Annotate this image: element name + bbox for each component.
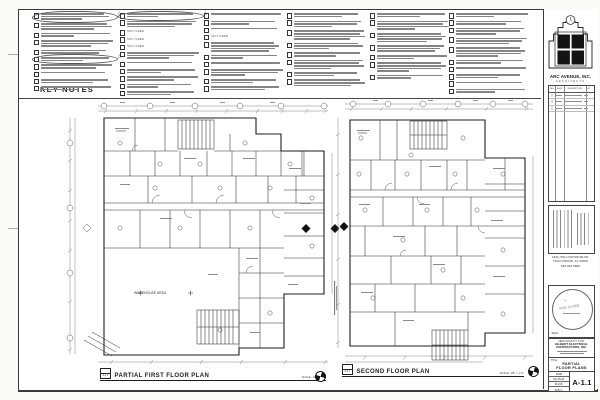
note-text-line bbox=[377, 65, 445, 67]
note-text-line bbox=[294, 26, 332, 28]
note-text-line bbox=[456, 47, 520, 49]
key-note-text bbox=[294, 42, 367, 50]
key-note-item bbox=[34, 50, 114, 56]
rotated-text-block bbox=[577, 213, 590, 245]
note-text-line bbox=[377, 48, 440, 50]
note-text-line bbox=[127, 62, 192, 64]
project-name: CONTRACTORS, INC. bbox=[549, 346, 594, 350]
key-note-text bbox=[41, 40, 114, 48]
note-text-line bbox=[127, 21, 196, 23]
note-text-line bbox=[456, 91, 495, 93]
note-text-line bbox=[456, 16, 494, 18]
key-note-item bbox=[204, 79, 284, 85]
note-text-line bbox=[377, 21, 448, 23]
note-text-line bbox=[127, 86, 158, 88]
key-note-number-box bbox=[204, 13, 209, 18]
key-note-text bbox=[377, 55, 450, 60]
key-note-number-box bbox=[449, 81, 454, 86]
note-text-line bbox=[41, 43, 108, 45]
note-text-line bbox=[211, 13, 281, 15]
key-note-item bbox=[120, 52, 200, 60]
note-text-line bbox=[294, 68, 331, 70]
note-text-line bbox=[377, 33, 441, 35]
interior-walls bbox=[350, 120, 525, 360]
key-note-number-box bbox=[370, 20, 375, 25]
key-note-text bbox=[127, 20, 200, 28]
note-text-line bbox=[294, 48, 329, 50]
refbox-sheet: A-1.1 bbox=[101, 374, 110, 378]
note-text-line bbox=[41, 40, 112, 42]
key-notes-column bbox=[370, 13, 450, 82]
note-text-line bbox=[377, 70, 409, 72]
key-note-text bbox=[456, 88, 529, 93]
note-text-line bbox=[41, 52, 99, 54]
key-note-number-box bbox=[449, 37, 454, 42]
key-note-number-box bbox=[204, 55, 209, 60]
key-note-item bbox=[120, 62, 200, 68]
note-text-line bbox=[294, 55, 336, 57]
key-note-item: NOT USED bbox=[204, 35, 284, 41]
key-note-item bbox=[287, 20, 367, 28]
note-text-line bbox=[41, 89, 77, 91]
key-note-item bbox=[287, 52, 367, 58]
note-text-line bbox=[41, 13, 104, 15]
note-text-line bbox=[377, 77, 411, 79]
key-note-item bbox=[370, 20, 450, 31]
note-text-line bbox=[294, 62, 359, 64]
note-text-line bbox=[377, 62, 440, 64]
key-note-number-box bbox=[204, 42, 209, 47]
key-notes-column: △△ bbox=[34, 13, 114, 93]
key-note-text bbox=[377, 20, 450, 31]
key-note-text bbox=[377, 13, 450, 18]
key-note-number-box bbox=[120, 20, 125, 25]
key-note-number-box bbox=[449, 74, 454, 79]
note-text-line bbox=[127, 16, 158, 18]
key-note-number-box bbox=[120, 45, 125, 50]
note-text-line bbox=[377, 16, 420, 18]
key-notes-column: △NOT USEDNOT USEDNOT USED bbox=[120, 13, 200, 98]
first-floor-plan-drawing: WAREHOUSE AREA bbox=[60, 98, 340, 370]
note-text-line bbox=[41, 86, 111, 88]
key-note-text bbox=[456, 37, 529, 45]
note-text-line bbox=[127, 79, 174, 81]
second-floor-plan-caption: A-1.1 SECOND FLOOR PLAN SCALE: 1/8" = 1'… bbox=[342, 364, 524, 377]
key-note-text bbox=[456, 13, 529, 18]
seal-box: AUG 13 2002 + SEAL bbox=[548, 285, 595, 339]
note-text-line bbox=[377, 41, 427, 43]
key-note-text bbox=[127, 52, 200, 60]
note-text-line bbox=[41, 18, 82, 20]
key-note-number-box bbox=[120, 52, 125, 57]
key-note-text bbox=[41, 33, 114, 38]
note-text-line bbox=[294, 65, 364, 67]
note-text-line bbox=[456, 30, 519, 32]
key-note-number-box bbox=[449, 13, 454, 18]
key-note-text bbox=[456, 81, 529, 84]
key-note-item: △ bbox=[120, 13, 200, 19]
key-note-text bbox=[211, 62, 284, 65]
key-note-item: NOT USED bbox=[120, 30, 200, 36]
note-text-line bbox=[294, 85, 351, 87]
key-note-text bbox=[41, 13, 114, 21]
key-note-number-box bbox=[34, 33, 39, 38]
note-text-line bbox=[456, 62, 500, 64]
note-text-line bbox=[127, 76, 198, 78]
fold-mark bbox=[8, 228, 18, 229]
note-text-line bbox=[377, 55, 447, 57]
dimension-lines bbox=[336, 104, 533, 362]
key-note-number-box bbox=[370, 45, 375, 50]
note-text-line bbox=[294, 38, 349, 40]
key-note-text bbox=[41, 50, 114, 55]
key-note-text bbox=[41, 23, 114, 31]
key-note-text bbox=[127, 83, 200, 88]
key-note-item bbox=[449, 28, 529, 36]
second-floor-plan-scale: SCALE: 1/8" = 1'-0" bbox=[500, 371, 524, 376]
note-text-line bbox=[456, 53, 521, 55]
note-text-line bbox=[294, 21, 361, 23]
key-note-item bbox=[287, 59, 367, 70]
refbox-sheet: A-1.1 bbox=[343, 370, 352, 374]
key-note-number-box bbox=[287, 13, 292, 18]
note-text-line bbox=[41, 26, 112, 28]
stamp-line bbox=[563, 313, 580, 314]
note-text-line bbox=[294, 13, 358, 15]
key-note-number-box bbox=[449, 28, 454, 33]
note-text-line bbox=[294, 45, 362, 47]
note-text-line bbox=[127, 57, 169, 59]
note-text-line bbox=[294, 30, 364, 32]
key-note-text bbox=[127, 62, 200, 65]
key-note-text: NOT USED bbox=[127, 37, 200, 40]
key-note-number-box bbox=[34, 23, 39, 28]
key-note-number-box bbox=[204, 86, 209, 91]
key-note-text bbox=[41, 64, 114, 69]
section-markers bbox=[340, 222, 349, 231]
key-note-item: △ bbox=[34, 13, 114, 21]
sheet-info-grid: 1500 06-15-01 R.D.B. D.B.C. A-1.1 bbox=[548, 371, 595, 392]
revision-entry-placeholder bbox=[584, 95, 588, 96]
key-note-text bbox=[211, 20, 284, 25]
note-text-line bbox=[456, 43, 508, 45]
phone-number: 954.923.5800 bbox=[545, 264, 596, 268]
second-floor-plan-drawing bbox=[333, 96, 553, 372]
note-text-line bbox=[211, 21, 274, 23]
key-note-text bbox=[41, 57, 114, 62]
key-note-item bbox=[204, 69, 284, 77]
key-note-text bbox=[41, 71, 114, 74]
key-note-number-box bbox=[370, 33, 375, 38]
note-text-line bbox=[456, 33, 496, 35]
key-note-number-box bbox=[120, 91, 125, 96]
key-note-item bbox=[34, 33, 114, 39]
key-note-number-box bbox=[120, 30, 125, 35]
firm-address: 2341 HOLLYWOOD BLVD. HOLLYWOOD, FL 33020… bbox=[545, 255, 596, 268]
second-floor-plan-title: SECOND FLOOR PLAN bbox=[357, 369, 430, 375]
note-text-line bbox=[377, 23, 443, 25]
note-text-line bbox=[211, 57, 243, 59]
grid-bubbles bbox=[67, 103, 327, 341]
key-note-text: NOT USED bbox=[127, 45, 200, 48]
by-col: BY bbox=[586, 88, 593, 90]
note-text-line bbox=[41, 79, 108, 81]
key-note-number-box bbox=[34, 79, 39, 84]
note-text-line bbox=[41, 60, 83, 62]
key-note-text bbox=[127, 76, 200, 81]
note-text-line bbox=[41, 28, 94, 30]
key-note-item bbox=[34, 86, 114, 92]
note-text-line bbox=[127, 69, 195, 71]
key-note-item bbox=[204, 42, 284, 53]
key-note-text bbox=[211, 54, 284, 59]
key-note-item bbox=[287, 30, 367, 41]
drawing-sheet-page: KEY NOTES △△△NOT USEDNOT USEDNOT USEDNOT… bbox=[0, 0, 600, 400]
key-note-text bbox=[211, 79, 284, 84]
key-note-number-box bbox=[370, 55, 375, 60]
key-note-item bbox=[120, 76, 200, 82]
note-text-line bbox=[294, 60, 363, 62]
note-text-line bbox=[456, 23, 506, 25]
key-note-text bbox=[377, 45, 450, 53]
checked-by: D.B.C. bbox=[549, 387, 569, 392]
key-note-item bbox=[449, 47, 529, 58]
note-text-line bbox=[377, 38, 442, 40]
description-col: DESCRIPTION bbox=[564, 88, 586, 90]
note-text-line bbox=[456, 28, 524, 30]
project-address-placeholder bbox=[560, 353, 584, 354]
note-text-line bbox=[127, 72, 161, 74]
key-note-text bbox=[211, 42, 284, 53]
key-note-number-box bbox=[287, 43, 292, 48]
key-note-number-box bbox=[204, 28, 209, 33]
note-text-line bbox=[294, 72, 357, 74]
revision-entry-placeholder bbox=[584, 108, 588, 109]
note-text-line bbox=[456, 21, 521, 23]
note-text-line bbox=[456, 55, 498, 57]
key-note-number-box bbox=[449, 60, 454, 65]
door-swings bbox=[385, 183, 485, 256]
note-text-line bbox=[456, 60, 523, 62]
key-note-number-box bbox=[204, 62, 209, 67]
warehouse-room-label: WAREHOUSE AREA bbox=[134, 291, 167, 295]
key-note-number-box bbox=[120, 84, 125, 89]
note-text-line bbox=[211, 50, 269, 52]
detail-reference-box: A-1.1 bbox=[342, 364, 353, 375]
firm-name: ARC AVENUE, INC. bbox=[548, 74, 593, 79]
detail-reference-box: A-1.1 bbox=[100, 368, 111, 379]
note-text-line bbox=[41, 57, 109, 59]
key-note-text bbox=[294, 52, 367, 57]
note-text-line bbox=[456, 77, 498, 79]
key-note-item bbox=[370, 74, 450, 80]
note-text-line bbox=[377, 13, 445, 15]
note-text-line bbox=[211, 79, 276, 81]
note-text-line bbox=[41, 23, 107, 25]
not-used-note: NOT USED bbox=[127, 38, 200, 41]
key-note-item bbox=[287, 42, 367, 50]
note-text-line bbox=[127, 13, 193, 15]
revision-entry-placeholder bbox=[564, 101, 582, 102]
building-outline bbox=[104, 118, 324, 355]
note-text-line bbox=[127, 55, 194, 57]
note-text-line bbox=[41, 50, 106, 52]
key-note-number-box bbox=[34, 72, 39, 77]
key-note-item: NOT USED bbox=[120, 45, 200, 51]
note-text-line bbox=[377, 26, 448, 28]
key-note-text: NOT USED bbox=[127, 30, 200, 33]
key-notes-column bbox=[449, 13, 529, 96]
note-text-line bbox=[294, 33, 360, 35]
key-note-item: NOT USED bbox=[120, 37, 200, 43]
keynote-tags bbox=[83, 141, 314, 332]
key-note-text bbox=[456, 28, 529, 36]
key-note-number-box bbox=[449, 89, 454, 94]
note-text-line bbox=[41, 67, 96, 69]
key-note-text bbox=[41, 79, 114, 84]
key-note-number-box bbox=[120, 69, 125, 74]
key-note-item bbox=[370, 33, 450, 44]
key-note-item bbox=[449, 37, 529, 45]
key-note-number-box bbox=[287, 60, 292, 65]
approval-stamp bbox=[552, 289, 593, 330]
key-note-item bbox=[449, 74, 529, 80]
note-text-line bbox=[377, 50, 435, 52]
key-note-number-box bbox=[370, 13, 375, 18]
title-label: TITLE: bbox=[551, 359, 558, 362]
note-text-line bbox=[456, 38, 527, 40]
note-text-line bbox=[127, 52, 198, 54]
note-text-line bbox=[294, 43, 357, 45]
note-text-line bbox=[127, 23, 192, 25]
seal-label: SEAL bbox=[552, 331, 559, 335]
note-text-line bbox=[456, 89, 525, 91]
key-note-text bbox=[294, 79, 367, 87]
room-label-placeholders bbox=[334, 100, 513, 321]
info-cells: 1500 06-15-01 R.D.B. D.B.C. bbox=[549, 372, 570, 392]
key-note-text bbox=[456, 20, 529, 25]
key-note-text bbox=[456, 47, 529, 58]
key-note-number-box bbox=[120, 13, 125, 18]
sheet-number: A-1.1 bbox=[570, 372, 594, 392]
note-text-line bbox=[294, 75, 333, 77]
not-used-note: NOT USED bbox=[127, 30, 200, 33]
key-note-text bbox=[294, 13, 367, 18]
note-text-line bbox=[211, 86, 279, 88]
key-note-number-box bbox=[34, 64, 39, 69]
key-note-item bbox=[449, 81, 529, 87]
revision-entry-placeholder bbox=[555, 108, 562, 109]
not-used-note: NOT USED bbox=[127, 45, 200, 48]
key-note-item bbox=[204, 86, 284, 92]
note-text-line bbox=[127, 91, 194, 93]
key-note-item bbox=[120, 83, 200, 89]
note-text-line bbox=[211, 45, 279, 47]
note-text-line bbox=[211, 62, 279, 64]
key-note-item bbox=[34, 23, 114, 31]
note-text-line bbox=[41, 72, 105, 74]
note-text-line bbox=[41, 82, 93, 84]
date-col: DATE bbox=[555, 88, 564, 90]
note-text-line bbox=[127, 84, 191, 86]
key-note-number-box bbox=[287, 79, 292, 84]
key-note-text bbox=[456, 67, 529, 70]
note-text-line bbox=[41, 64, 112, 66]
key-note-number-box bbox=[287, 30, 292, 35]
revision-row: △ bbox=[549, 106, 594, 113]
key-note-number-box bbox=[34, 40, 39, 45]
key-note-text: NOT USED bbox=[211, 35, 284, 38]
project-address-placeholder bbox=[557, 351, 587, 352]
first-floor-plan-title: PARTIAL FIRST FLOOR PLAN bbox=[115, 373, 210, 379]
key-note-item bbox=[204, 20, 284, 26]
key-notes-column: NOT USED bbox=[204, 13, 284, 93]
note-text-line bbox=[211, 48, 274, 50]
firm-subtitle: ARCHITECTS bbox=[548, 80, 593, 83]
key-note-number-box bbox=[287, 20, 292, 25]
key-note-item bbox=[204, 28, 284, 34]
key-note-item bbox=[34, 71, 114, 77]
key-note-item bbox=[449, 88, 529, 94]
revision-entry-placeholder bbox=[564, 108, 582, 109]
key-note-item bbox=[204, 13, 284, 19]
key-note-text bbox=[211, 28, 284, 31]
key-note-number-box bbox=[120, 62, 125, 67]
note-text-line bbox=[211, 69, 282, 71]
key-note-text bbox=[211, 13, 284, 16]
note-text-line bbox=[377, 58, 414, 60]
key-note-number-box bbox=[204, 35, 209, 40]
key-note-number-box bbox=[449, 20, 454, 25]
note-text-line bbox=[456, 13, 527, 15]
key-note-item bbox=[449, 20, 529, 26]
key-note-text bbox=[127, 13, 200, 18]
note-text-line bbox=[294, 79, 360, 81]
key-note-number-box bbox=[204, 20, 209, 25]
key-note-number-box bbox=[204, 79, 209, 84]
sheet-title: FLOOR PLANS bbox=[549, 366, 594, 371]
note-text-line bbox=[377, 45, 444, 47]
key-note-text bbox=[127, 91, 200, 96]
key-note-text bbox=[377, 74, 450, 79]
project-info-box: NEW FACILITY FOR: GILBERT ELECTRICAL CON… bbox=[548, 337, 595, 358]
key-note-item bbox=[370, 62, 450, 73]
note-text-line bbox=[294, 36, 365, 38]
note-text-line bbox=[211, 23, 249, 25]
key-note-item bbox=[287, 13, 367, 19]
note-text-line bbox=[127, 94, 171, 96]
key-note-number-box bbox=[370, 62, 375, 67]
note-text-line bbox=[211, 55, 277, 57]
note-text-line bbox=[211, 42, 274, 44]
revision-entry-placeholder bbox=[555, 101, 562, 102]
key-note-number-box bbox=[34, 57, 39, 62]
firm-logo: ARC AVENUE, INC. ARCHITECTS bbox=[548, 11, 593, 83]
key-note-item bbox=[204, 54, 284, 60]
note-text-line bbox=[456, 67, 526, 69]
revision-entry-placeholder bbox=[584, 101, 588, 102]
note-text-line bbox=[456, 50, 525, 52]
key-note-number-box bbox=[34, 13, 39, 18]
key-note-text bbox=[456, 74, 529, 79]
key-note-item bbox=[120, 91, 200, 97]
key-note-text bbox=[294, 20, 367, 28]
key-note-item bbox=[204, 62, 284, 68]
key-note-item bbox=[287, 72, 367, 78]
note-text-line bbox=[294, 52, 360, 54]
key-note-text bbox=[211, 69, 284, 77]
door-swings bbox=[132, 145, 280, 273]
